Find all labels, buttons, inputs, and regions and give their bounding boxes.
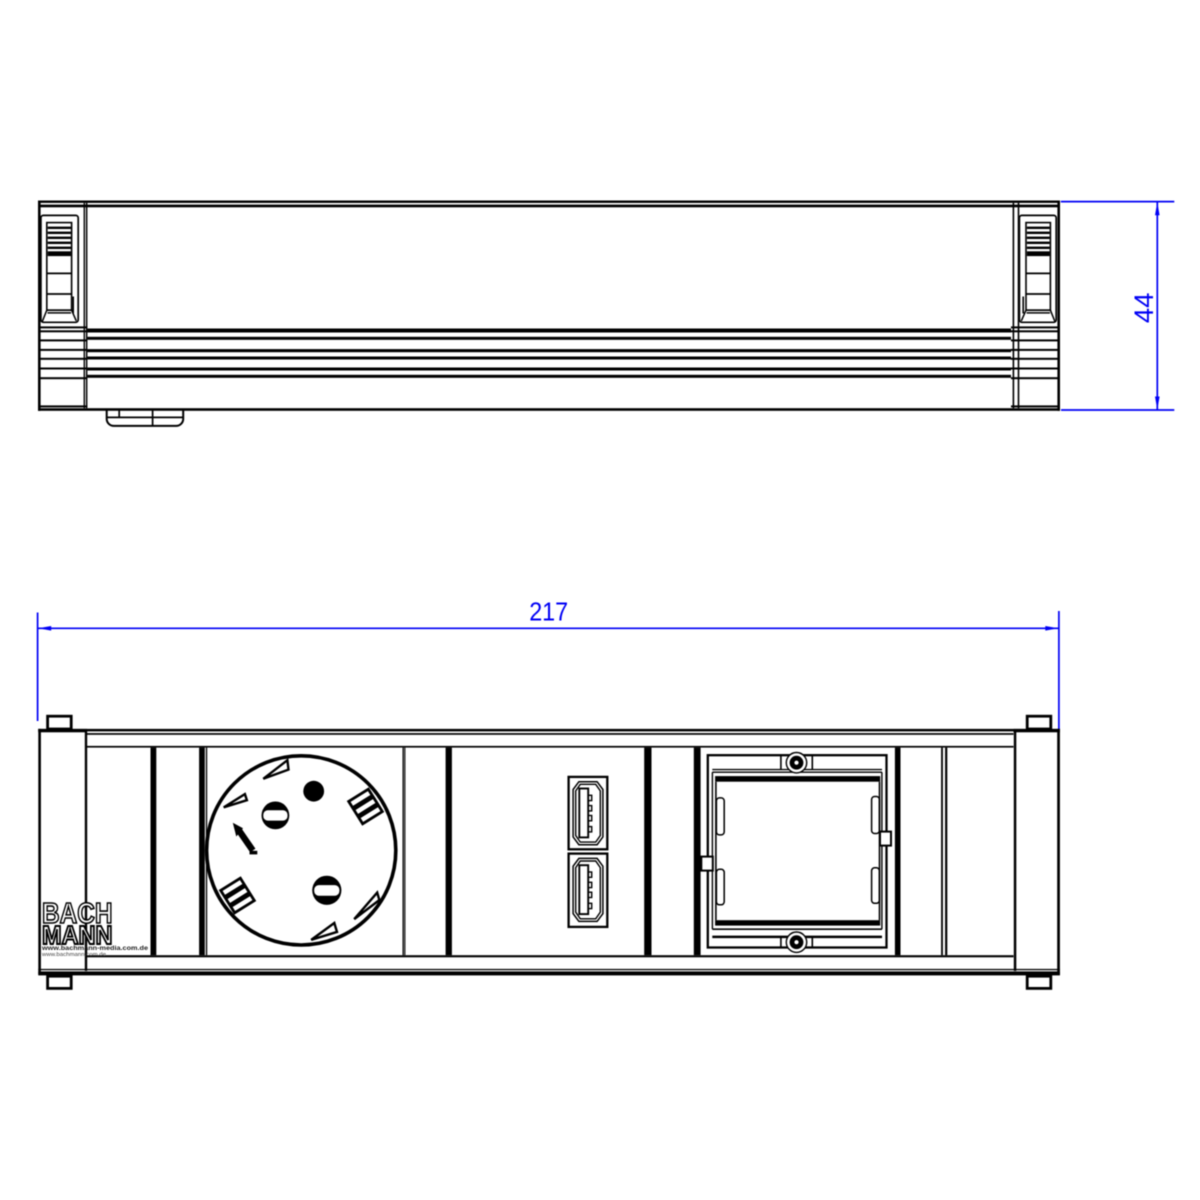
svg-text:217: 217 (529, 599, 568, 627)
svg-text:www.bachmann.com.de: www.bachmann.com.de (42, 952, 106, 958)
svg-text:44: 44 (1129, 293, 1159, 324)
